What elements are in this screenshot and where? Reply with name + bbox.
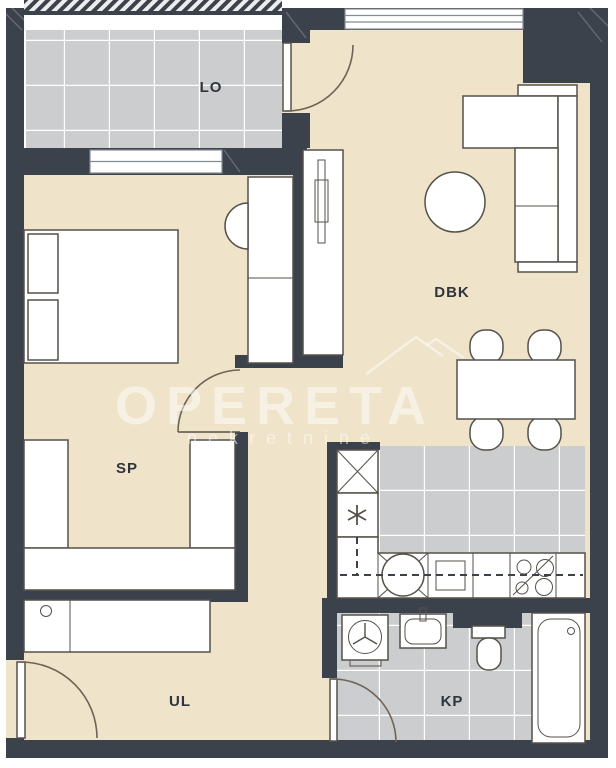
left-wall (6, 8, 24, 758)
bed-pillow-bottom (28, 300, 58, 360)
watermark-brand: OPERETA (115, 376, 435, 436)
top-right-corner-block (523, 8, 608, 83)
balcony-east-wall-lower (282, 113, 310, 148)
floor-plan-drawing: LO DBK SP UL KP OPERETA nekretnine (0, 0, 616, 768)
balcony-railing (24, 0, 282, 12)
sofa-back-top (518, 85, 577, 96)
kitchen-bath-wall (322, 598, 590, 613)
balcony-door-leaf (283, 43, 291, 111)
coffee-table (425, 172, 485, 232)
dining-table (457, 360, 575, 419)
dining-chair (470, 330, 503, 364)
sofa-armrest (518, 262, 577, 272)
hall-cabinet (24, 600, 210, 652)
watermark-subtitle: nekretnine (187, 428, 381, 448)
toilet-tank (472, 626, 505, 638)
living-room-window (345, 9, 523, 29)
water-heater (337, 493, 378, 537)
right-wall (590, 83, 608, 758)
room-label-sp: SP (116, 460, 138, 477)
kitchen-tiles (378, 446, 585, 553)
room-label-kp: KP (441, 693, 464, 710)
bathroom-sink (400, 608, 446, 648)
dining-chair (528, 416, 561, 450)
closet-bottom-row (24, 548, 235, 590)
shaft (337, 450, 378, 493)
floor-plan: LO DBK SP UL KP OPERETA nekretnine (0, 0, 616, 768)
closet-right-column (190, 440, 235, 548)
balcony-railing-edge (24, 11, 282, 15)
bathtub (532, 613, 585, 743)
dining-chair (528, 330, 561, 364)
toilet-bowl (477, 638, 501, 670)
dining-chair (470, 416, 503, 450)
bedroom-window (90, 150, 222, 173)
room-label-dbk: DBK (434, 284, 470, 301)
bottom-wall (6, 740, 608, 758)
washing-machine (342, 615, 388, 666)
bed-pillow-top (28, 234, 58, 293)
bath-west-wall (322, 613, 337, 678)
entrance-door-leaf (17, 662, 25, 738)
bedroom-east-wall (235, 432, 248, 602)
tv-cabinet (303, 150, 343, 355)
bedroom-wardrobe (248, 177, 293, 363)
bathroom-door-leaf (330, 679, 337, 741)
room-label-lo: LO (200, 79, 223, 96)
hall-ul (24, 600, 210, 652)
closet-left-column (24, 440, 68, 548)
sofa-chaise (463, 96, 558, 148)
sofa-back-right (558, 96, 577, 262)
room-label-ul: UL (169, 693, 191, 710)
sofa-seat (515, 148, 558, 262)
balcony-tiles (26, 30, 282, 148)
kitchen-west-wall (327, 442, 337, 610)
